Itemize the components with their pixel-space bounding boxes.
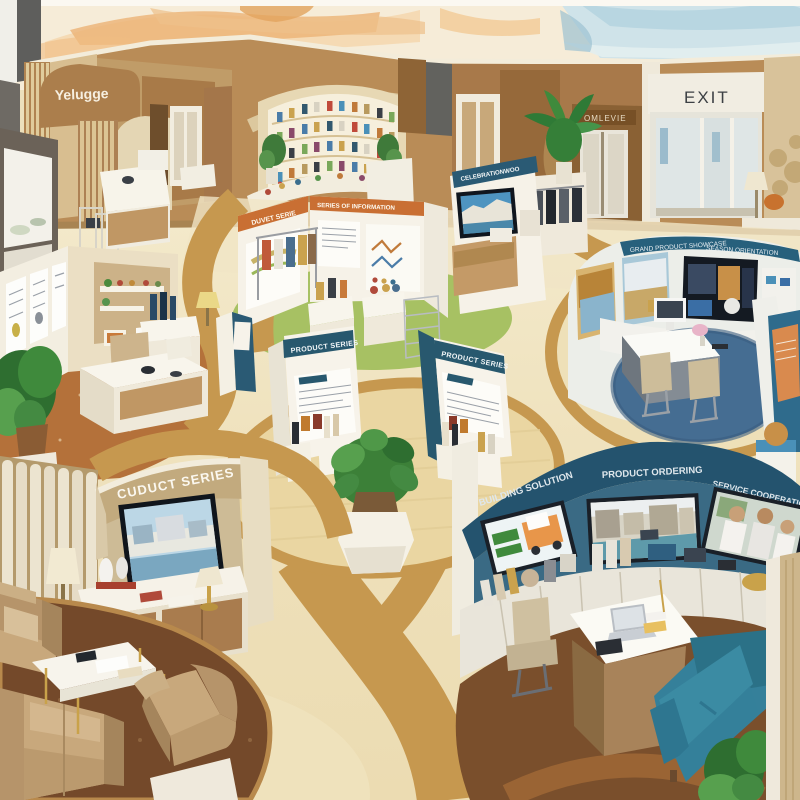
svg-text:EXIT: EXIT <box>684 88 730 107</box>
svg-text:Yelugge: Yelugge <box>55 85 109 103</box>
svg-text:OMLEVIE: OMLEVIE <box>584 114 627 123</box>
